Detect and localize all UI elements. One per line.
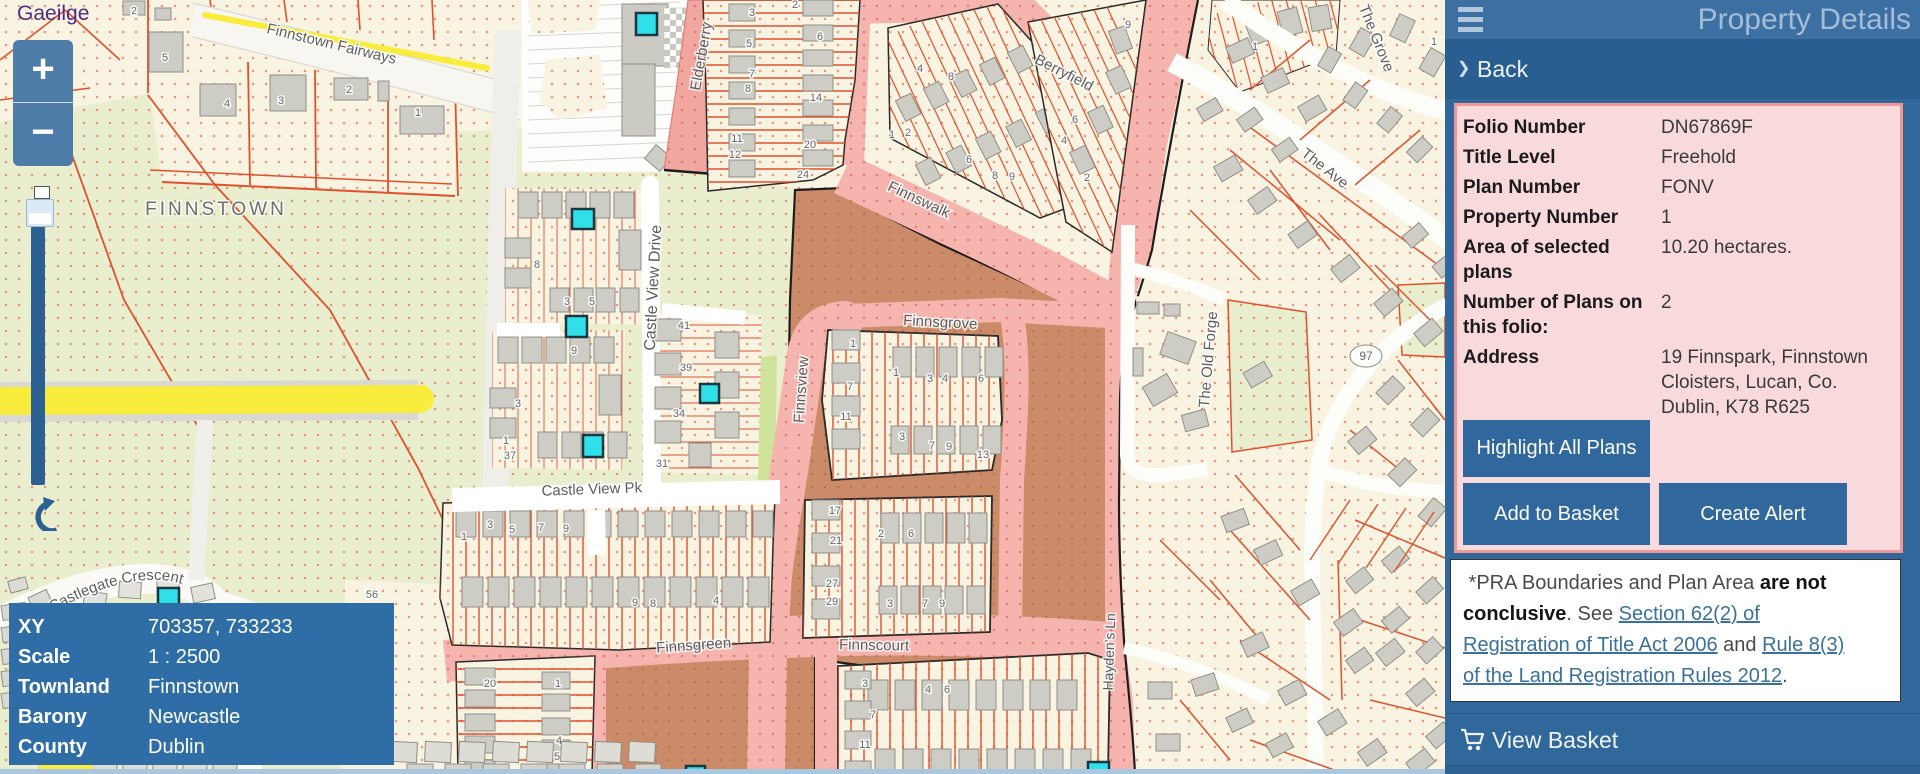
svg-text:2: 2	[792, 0, 798, 11]
svg-text:6: 6	[817, 31, 823, 43]
svg-text:FINNSTOWN: FINNSTOWN	[145, 199, 287, 220]
svg-text:97: 97	[1359, 349, 1373, 363]
svg-text:37: 37	[504, 450, 516, 462]
svg-text:Finnscourt: Finnscourt	[839, 636, 910, 654]
svg-text:8: 8	[650, 598, 656, 610]
svg-text:3: 3	[564, 296, 570, 308]
svg-text:4: 4	[1061, 135, 1067, 147]
svg-text:8: 8	[534, 259, 540, 271]
svg-text:5: 5	[162, 52, 168, 64]
svg-text:9: 9	[1125, 19, 1131, 31]
svg-text:31: 31	[656, 458, 668, 470]
svg-text:34: 34	[673, 408, 685, 420]
svg-text:1: 1	[461, 531, 467, 543]
svg-text:9: 9	[1009, 171, 1015, 183]
svg-text:3: 3	[899, 431, 905, 443]
svg-text:9: 9	[946, 441, 952, 453]
svg-text:8: 8	[745, 83, 751, 95]
svg-text:9: 9	[939, 598, 945, 610]
svg-text:7: 7	[929, 440, 935, 452]
svg-text:3: 3	[515, 398, 521, 410]
svg-text:4: 4	[942, 373, 948, 385]
svg-text:5: 5	[554, 751, 560, 763]
svg-text:11: 11	[840, 411, 851, 423]
svg-text:5: 5	[589, 296, 595, 308]
svg-text:27: 27	[826, 578, 838, 590]
svg-text:14: 14	[810, 92, 822, 104]
svg-text:Castle View Pk: Castle View Pk	[541, 479, 643, 500]
svg-text:6: 6	[908, 528, 914, 540]
svg-text:1: 1	[415, 107, 421, 119]
svg-text:1: 1	[503, 435, 509, 447]
svg-text:1: 1	[555, 678, 561, 690]
svg-text:7: 7	[749, 68, 755, 80]
svg-text:3: 3	[278, 95, 284, 107]
svg-text:6: 6	[978, 373, 984, 385]
svg-text:24: 24	[797, 169, 809, 181]
svg-text:9: 9	[632, 597, 638, 609]
svg-text:7: 7	[922, 598, 928, 610]
svg-text:17: 17	[829, 505, 841, 517]
svg-text:12: 12	[729, 149, 741, 161]
svg-text:4: 4	[917, 63, 923, 75]
svg-text:9: 9	[563, 523, 569, 535]
svg-text:1: 1	[893, 367, 899, 379]
svg-text:7: 7	[538, 522, 544, 534]
svg-text:5: 5	[746, 38, 752, 50]
svg-text:2: 2	[878, 528, 884, 540]
svg-text:8: 8	[992, 170, 998, 182]
svg-text:2: 2	[131, 6, 137, 17]
svg-text:21: 21	[830, 535, 842, 547]
svg-text:6: 6	[1072, 114, 1078, 126]
svg-text:6: 6	[944, 684, 950, 696]
svg-text:8: 8	[948, 71, 954, 83]
svg-text:9: 9	[571, 345, 577, 357]
svg-text:4: 4	[713, 595, 719, 607]
svg-text:1: 1	[889, 129, 895, 141]
svg-text:7: 7	[847, 381, 853, 393]
svg-text:2: 2	[346, 84, 352, 96]
svg-text:1: 1	[850, 338, 856, 350]
svg-text:6: 6	[966, 154, 972, 166]
svg-text:13: 13	[977, 449, 989, 461]
svg-text:41: 41	[678, 320, 690, 332]
svg-text:11: 11	[731, 133, 742, 145]
svg-text:3: 3	[749, 7, 755, 19]
svg-text:1: 1	[1431, 36, 1437, 48]
svg-text:3: 3	[487, 519, 493, 531]
svg-text:2: 2	[905, 127, 911, 139]
svg-text:20: 20	[484, 678, 496, 690]
svg-text:11: 11	[859, 739, 870, 751]
svg-text:2: 2	[1084, 172, 1090, 184]
svg-text:39: 39	[680, 362, 692, 374]
svg-text:3: 3	[887, 598, 893, 610]
svg-text:5: 5	[509, 524, 515, 536]
svg-text:29: 29	[826, 596, 838, 608]
svg-text:3: 3	[927, 373, 933, 385]
svg-text:4: 4	[224, 98, 230, 110]
svg-text:7: 7	[870, 709, 876, 721]
svg-text:20: 20	[804, 139, 816, 151]
svg-text:3: 3	[862, 678, 868, 690]
svg-text:Hayden's Ln: Hayden's Ln	[1100, 613, 1119, 691]
svg-text:4: 4	[925, 684, 931, 696]
svg-text:56: 56	[366, 589, 378, 601]
